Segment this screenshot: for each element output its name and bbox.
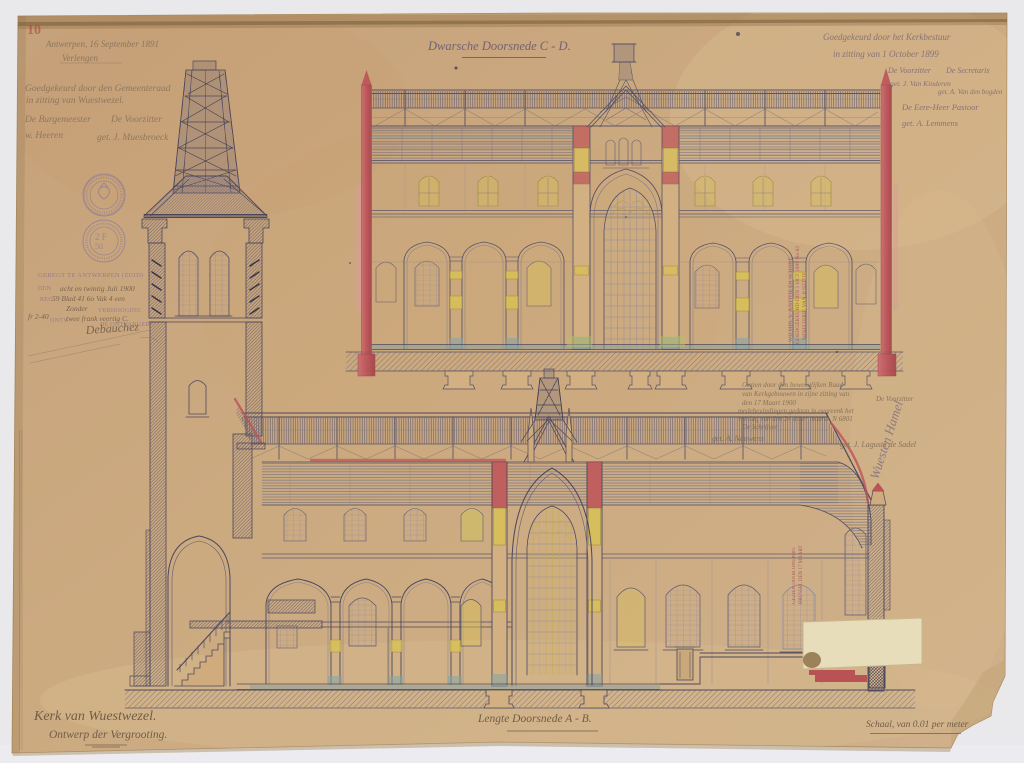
svg-text:get. A. Lemmens: get. A. Lemmens <box>902 118 959 128</box>
svg-text:Lengte Doorsnede A - B.: Lengte Doorsnede A - B. <box>477 713 592 725</box>
svg-text:De Secretaris: De Secretaris <box>945 66 989 75</box>
svg-text:WIJ MIN. V. JUSTITIE EN SCHONE: WIJ MIN. V. JUSTITIE EN SCHONE <box>788 256 794 342</box>
svg-text:Goedgekeurd door den Gemeenter: Goedgekeurd door den Gemeenteraad <box>25 84 171 94</box>
svg-text:Ontwerp der Vergrooting.: Ontwerp der Vergrooting. <box>49 729 167 741</box>
svg-text:De Eere-Heer Pastoor: De Eere-Heer Pastoor <box>901 102 979 112</box>
svg-text:2 F: 2 F <box>95 232 107 242</box>
svg-text:De Voorzitter: De Voorzitter <box>875 395 914 403</box>
svg-text:59 Blad 41 6o Vak 4 een: 59 Blad 41 6o Vak 4 een <box>52 294 125 303</box>
svg-text:get. A. Nauwens: get. A. Nauwens <box>712 434 764 443</box>
svg-text:De Schrijver: De Schrijver <box>741 423 778 431</box>
svg-text:Gezien door den beweeglijken R: Gezien door den beweeglijken Raad <box>742 381 844 389</box>
svg-text:De Voorzitter: De Voorzitter <box>887 66 932 75</box>
svg-text:medebevindingen gedaan in over: medebevindingen gedaan in overeenk het <box>738 407 855 415</box>
svg-text:GEREGT TE ANTWERPEN (ZUID): GEREGT TE ANTWERPEN (ZUID) <box>38 272 144 279</box>
svg-text:10: 10 <box>27 23 41 38</box>
svg-text:get. J. Van Kinderen: get. J. Van Kinderen <box>890 79 951 88</box>
svg-text:Verlengen: Verlengen <box>62 53 98 63</box>
svg-text:verslag van den 24 dezer maand: verslag van den 24 dezer maand, N 6801 <box>738 415 853 423</box>
svg-text:in zitting van 1 October 1899: in zitting van 1 October 1899 <box>833 49 939 59</box>
svg-text:GEZIEN DOOR ONS MIN.: GEZIEN DOOR ONS MIN. <box>792 547 797 604</box>
svg-text:in zitting van Wuestwezel.: in zitting van Wuestwezel. <box>26 96 124 106</box>
svg-text:Schaal, van 0.01 per meter: Schaal, van 0.01 per meter <box>866 720 969 730</box>
svg-text:den 17 Maart 1900: den 17 Maart 1900 <box>742 399 796 407</box>
svg-text:BRUSSEL DEN 17 MAART: BRUSSEL DEN 17 MAART <box>799 545 804 604</box>
svg-text:get. J. Muesbroeck: get. J. Muesbroeck <box>97 133 169 143</box>
svg-text:De Burgemeester: De Burgemeester <box>24 115 91 125</box>
svg-text:w. Heeren: w. Heeren <box>25 131 63 141</box>
svg-text:50: 50 <box>95 242 103 251</box>
svg-text:Dwarsche Doorsnede C - D.: Dwarsche Doorsnede C - D. <box>427 39 571 53</box>
svg-text:MINISTERIE VAN JUSTITIE: MINISTERIE VAN JUSTITIE <box>802 271 808 340</box>
svg-text:Antwerpen, 16 September 1891: Antwerpen, 16 September 1891 <box>45 39 159 49</box>
svg-text:GOEDGEKEURD DEN 1 OCT 1899 No: GOEDGEKEURD DEN 1 OCT 1899 No 82 <box>795 246 801 344</box>
svg-text:get. A. Van den bogden: get. A. Van den bogden <box>938 88 1003 96</box>
svg-text:Goedgekeurd door het Kerkbestu: Goedgekeurd door het Kerkbestuur <box>823 32 951 42</box>
svg-text:Kerk van Wuestwezel.: Kerk van Wuestwezel. <box>33 709 156 724</box>
svg-text:De Voorzitter: De Voorzitter <box>110 115 162 125</box>
svg-text:acht en twintig Juli 1900: acht en twintig Juli 1900 <box>60 284 135 293</box>
svg-text:fr 2-40: fr 2-40 <box>28 312 49 321</box>
svg-text:get. J. Laguste de Sadel: get. J. Laguste de Sadel <box>840 440 917 449</box>
svg-text:DEN: DEN <box>38 286 52 292</box>
svg-text:van Kerkgebouwen in zijne zitt: van Kerkgebouwen in zijne zitting van <box>742 390 850 398</box>
svg-text:Zonder: Zonder <box>66 304 88 313</box>
